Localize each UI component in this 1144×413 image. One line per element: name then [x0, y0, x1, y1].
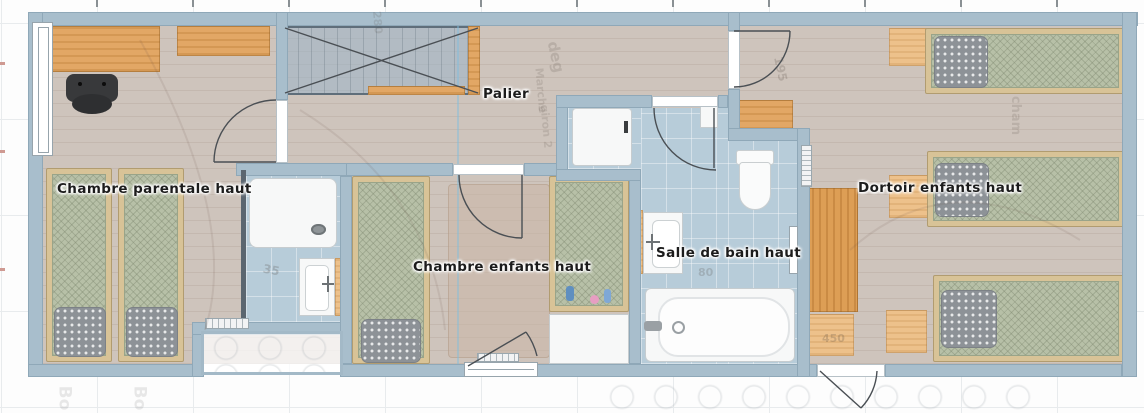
ghost-text-bo1: Bo	[54, 386, 74, 411]
sink-bathroom[interactable]	[643, 212, 683, 274]
door-dormitory[interactable]	[728, 31, 740, 89]
bed-dorm-1[interactable]	[925, 28, 1125, 94]
pillow	[126, 307, 178, 357]
wall-laundry-bottom	[556, 169, 641, 181]
room-label-bathroom: Salle de bain haut	[656, 245, 801, 261]
grid-accent-line	[457, 12, 459, 377]
balcony-ghost-shapes	[204, 334, 340, 372]
ghost-text-bo2: Bo	[129, 386, 149, 411]
ghost-text-280: 280	[370, 10, 385, 34]
desk-dormitory[interactable]	[804, 188, 858, 312]
faucet	[646, 241, 660, 243]
floor-plan-canvas: Chambre parentale haut Palier Chambre en…	[0, 0, 1144, 413]
nightstand-1[interactable]	[889, 28, 928, 66]
wall-bottom-left	[28, 364, 204, 377]
office-chair-seat	[72, 94, 112, 114]
toy-pink[interactable]	[590, 295, 599, 304]
ruler-tick	[576, 0, 578, 7]
ruler-tick	[1056, 0, 1058, 7]
faucet-bar	[651, 234, 653, 250]
pillow	[361, 319, 421, 363]
bed-kids-right[interactable]	[549, 176, 629, 312]
faucet-bar	[327, 276, 329, 292]
shower-drain	[311, 224, 326, 235]
ruler-tick	[768, 0, 770, 7]
lower-floor-ghost-shapes	[600, 383, 1040, 411]
room-label-landing: Palier	[483, 86, 529, 102]
toy-blue-1[interactable]	[566, 286, 574, 301]
pillow	[54, 307, 106, 357]
chair-knob-right	[102, 82, 106, 86]
ruler-tick	[864, 0, 866, 7]
ruler-tick	[288, 0, 290, 7]
room-label-parental: Chambre parentale haut	[57, 181, 252, 197]
ghost-text-35: 35	[262, 262, 281, 279]
ruler-tick	[480, 0, 482, 7]
wall-dormitory-upper-a	[728, 12, 740, 31]
wall-bathroom-top-right	[718, 95, 728, 108]
radiator-bathroom[interactable]	[801, 145, 812, 187]
bathtub-faucet	[644, 321, 662, 331]
shower-tray[interactable]	[249, 178, 337, 248]
wall-shower-room-top	[236, 163, 352, 176]
window-parental[interactable]	[32, 22, 53, 156]
ruler-mark-left	[0, 150, 5, 153]
pillow	[941, 290, 997, 348]
wall-kids-top-left	[346, 163, 453, 176]
window-mullion	[468, 369, 534, 370]
room-label-kids: Chambre enfants haut	[413, 259, 591, 275]
staircase-wood-edge-bottom[interactable]	[368, 86, 465, 95]
bathtub[interactable]	[645, 288, 795, 362]
ruler-mark-left	[0, 268, 5, 271]
staircase-wood-edge-right[interactable]	[468, 26, 480, 95]
ruler-tick	[672, 0, 674, 7]
chair-knob-left	[78, 82, 82, 86]
ghost-text-cham: cham	[1008, 96, 1023, 135]
toilet-bowl	[739, 162, 771, 210]
pillow	[934, 36, 988, 88]
sink-shower-room[interactable]	[299, 258, 335, 316]
wall-kids-right	[629, 176, 641, 364]
door-dormitory-exterior[interactable]	[817, 364, 885, 377]
radiator-kids[interactable]	[477, 353, 519, 362]
ruler-tick	[192, 0, 194, 7]
bed-parental-2[interactable]	[118, 168, 184, 362]
ghost-text-80: 80	[698, 266, 713, 279]
door-kids[interactable]	[453, 164, 524, 175]
staircase[interactable]	[283, 26, 480, 95]
ghost-text-450: 450	[822, 332, 845, 345]
washing-machine[interactable]	[572, 108, 632, 166]
office-chair[interactable]	[64, 74, 120, 118]
nightstand-3[interactable]	[886, 310, 927, 353]
ruler-mark-left	[0, 62, 5, 65]
bed-parental-1[interactable]	[46, 168, 112, 362]
door-bathroom[interactable]	[652, 96, 718, 107]
toilet[interactable]	[736, 150, 774, 212]
window-kids[interactable]	[464, 362, 538, 377]
bathtub-drain	[672, 321, 685, 334]
wall-bottom-middle	[340, 364, 817, 377]
washing-machine-latch	[624, 121, 628, 133]
ruler-tick	[960, 0, 962, 7]
desk-parental-right[interactable]	[177, 26, 270, 56]
room-label-dormitory: Dortoir enfants haut	[858, 180, 1022, 196]
wall-parental-landing	[276, 12, 288, 100]
toy-blue-2[interactable]	[604, 289, 611, 303]
ruler-tick	[96, 0, 98, 7]
window-sash	[38, 27, 49, 153]
radiator-parental[interactable]	[205, 318, 249, 329]
desk-parental-left[interactable]	[44, 26, 160, 72]
ruler-tick	[384, 0, 386, 7]
balcony-outline	[201, 331, 343, 375]
dresser-kids[interactable]	[549, 314, 629, 364]
door-parental[interactable]	[276, 100, 288, 163]
wall-bathroom-top-left	[556, 95, 652, 108]
wall-exterior-top	[28, 12, 1138, 26]
bed-dorm-3[interactable]	[933, 275, 1125, 362]
wall-exterior-right	[1122, 12, 1137, 377]
wall-bottom-right	[885, 364, 1122, 377]
sink-basin	[305, 265, 329, 311]
shelf-dormitory[interactable]	[737, 100, 793, 130]
